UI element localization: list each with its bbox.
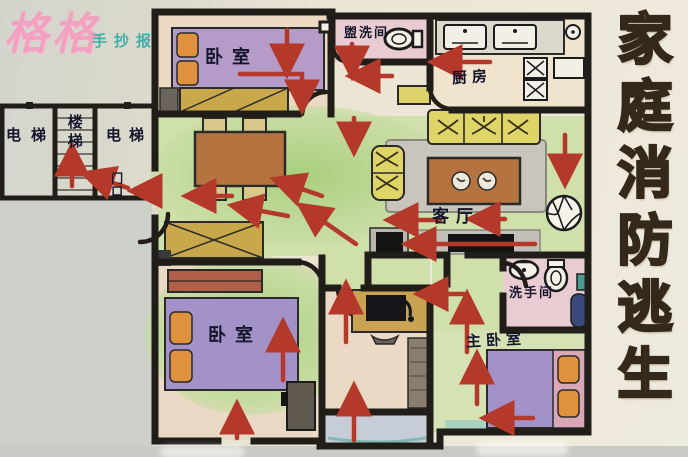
- room-label-washroom: 盥洗间: [344, 26, 389, 40]
- room-label-bedroom-top: 卧室: [205, 48, 259, 67]
- label-stairs: 楼梯: [66, 114, 82, 152]
- watermark-subtitle: 手抄报: [92, 30, 158, 51]
- photo-smudge: [160, 446, 244, 457]
- coffee-table-icon: [428, 158, 520, 204]
- floor-plan-drawing: [0, 0, 688, 457]
- room-label-kitchen: 厨房: [451, 69, 492, 88]
- room-label-living-room: 客厅: [432, 208, 480, 226]
- room-label-bedroom-bottom: 卧室: [208, 326, 262, 345]
- toilet-icon: [385, 29, 422, 49]
- photo-smudge: [476, 442, 568, 456]
- room-label-master-bedroom: 主卧室: [466, 331, 527, 350]
- label-elevator-right: 电梯: [106, 128, 152, 144]
- wardrobe-icon: [160, 88, 288, 112]
- label-entrance: 门口: [110, 172, 123, 198]
- room-label-bathroom: 洗手间: [509, 286, 554, 300]
- fire-escape-poster: 卧室 盥洗间 厨房 客厅 卧室 主卧室 洗手间 电梯 楼梯 电梯 门口 格格 手…: [0, 0, 688, 457]
- label-elevator-left: 电梯: [6, 128, 56, 144]
- watermark-brand: 格格: [4, 0, 100, 62]
- football-icon: [547, 196, 581, 230]
- poster-title: 家庭消防逃生: [604, 10, 680, 452]
